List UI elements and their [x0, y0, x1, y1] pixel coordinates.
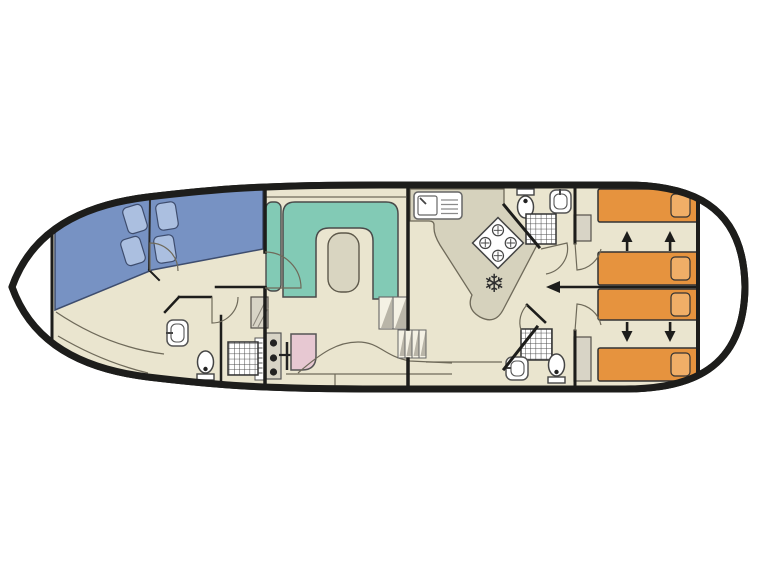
washbasin-icon — [550, 189, 571, 213]
steps-icon — [398, 330, 426, 358]
shower-icon — [521, 329, 552, 360]
fridge-snowflake-icon: ❄ — [484, 269, 505, 298]
wardrobe-icon — [574, 215, 591, 241]
galley-sink-icon — [414, 192, 462, 219]
pillow-icon — [671, 293, 690, 316]
pillow-icon — [153, 234, 177, 264]
wardrobe-icon — [574, 337, 591, 381]
toilet-icon — [548, 354, 565, 383]
table-icon — [328, 233, 359, 292]
pillow-icon — [671, 353, 690, 376]
pillow-icon — [671, 257, 690, 280]
washbasin-icon — [505, 357, 528, 380]
control-knobs-panel — [266, 333, 281, 379]
steps-icon — [379, 297, 407, 329]
sofa-side-bench — [266, 202, 281, 291]
toilet-icon — [197, 351, 214, 380]
boat-floor-plan-canvas: ❄ — [0, 0, 768, 576]
shower-icon — [228, 342, 258, 375]
washbasin-icon — [166, 320, 188, 346]
shower-icon — [526, 214, 556, 244]
boat-floor-plan: ❄ — [0, 0, 768, 576]
pillow-icon — [155, 201, 179, 231]
helm-seat-icon — [291, 334, 316, 370]
